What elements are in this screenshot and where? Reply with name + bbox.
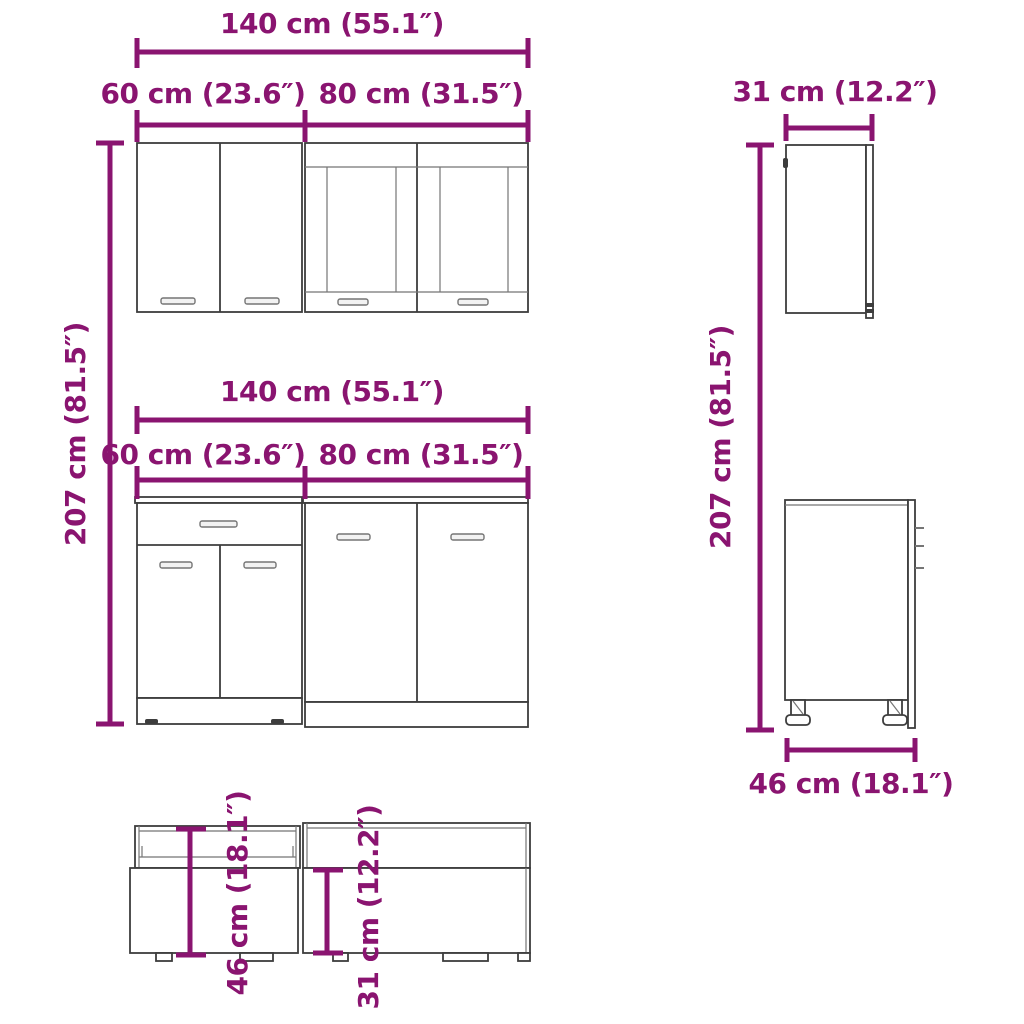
door-handle (458, 299, 488, 305)
door-handle (338, 299, 368, 305)
dimension-label-wall-total: 140 cm (55.1″) (220, 7, 444, 40)
dimension-label-base-total: 140 cm (55.1″) (220, 375, 444, 408)
door-handle (160, 562, 192, 568)
dimension-label-height-left: 207 cm (81.5″) (59, 322, 92, 546)
base-cabinet-80-plinth (305, 702, 528, 727)
dimension-line-base-side-depth (787, 738, 915, 762)
dimension-line-base-total (137, 406, 528, 434)
hinge-mark (866, 303, 874, 307)
top-view-tab (156, 953, 172, 961)
dimension-label-top-wall-depth: 31 cm (12.2″) (352, 805, 385, 1010)
dimension-label-wall-side-depth: 31 cm (12.2″) (733, 75, 938, 108)
adjustable-foot-pad (883, 715, 907, 725)
drawer-handle (200, 521, 237, 527)
door-handle (451, 534, 484, 540)
dimension-label-base-right: 80 cm (31.5″) (319, 438, 524, 471)
wall-side-body (786, 145, 866, 313)
top-view-80-body (303, 868, 530, 953)
dimension-line-wall-split (137, 110, 528, 142)
hinge-mark (783, 158, 788, 168)
hinge-mark (866, 309, 874, 313)
wall-side-door-front (866, 145, 873, 318)
base-cabinets-front-view (135, 497, 528, 727)
door-handle (337, 534, 370, 540)
dimension-label-wall-right: 80 cm (31.5″) (319, 77, 524, 110)
diagram-canvas: 140 cm (55.1″) 60 cm (23.6″) 80 cm (31.5… (0, 0, 1024, 1024)
dimension-line-height-left (96, 143, 124, 724)
base-side-door-front (908, 500, 915, 728)
dimension-line-wall-side-depth (786, 114, 872, 141)
door-handle (244, 562, 276, 568)
base-side-body (785, 500, 908, 700)
top-view-tab (443, 953, 488, 961)
door-handle (245, 298, 279, 304)
wall-cabinets-front-view (137, 143, 528, 312)
top-view-60-body (130, 868, 298, 953)
door-handle (161, 298, 195, 304)
top-view-tab (518, 953, 530, 961)
cabinet-foot (145, 719, 158, 724)
hinge-mark (915, 528, 924, 568)
dimension-label-top-base-depth: 46 cm (18.1″) (221, 791, 254, 996)
wall-cabinet-side-view (783, 145, 874, 318)
top-view-80-counter (303, 823, 530, 868)
dimension-label-base-side-depth: 46 cm (18.1″) (749, 767, 954, 800)
base-cabinet-top-view (130, 826, 300, 961)
kitchen-cabinet-dimension-diagram: 140 cm (55.1″) 60 cm (23.6″) 80 cm (31.5… (0, 0, 1024, 1024)
dimension-line-wall-total (137, 38, 528, 68)
dimension-label-wall-left: 60 cm (23.6″) (101, 77, 306, 110)
base-cabinet-side-view (785, 500, 924, 728)
wall-cabinet-top-view (303, 823, 530, 961)
dimension-label-base-left: 60 cm (23.6″) (101, 438, 306, 471)
adjustable-foot-pad (786, 715, 810, 725)
dimension-label-height-right: 207 cm (81.5″) (704, 325, 737, 549)
dimension-line-height-right (746, 145, 774, 730)
cabinet-foot (271, 719, 284, 724)
top-view-60-counter (135, 826, 300, 868)
